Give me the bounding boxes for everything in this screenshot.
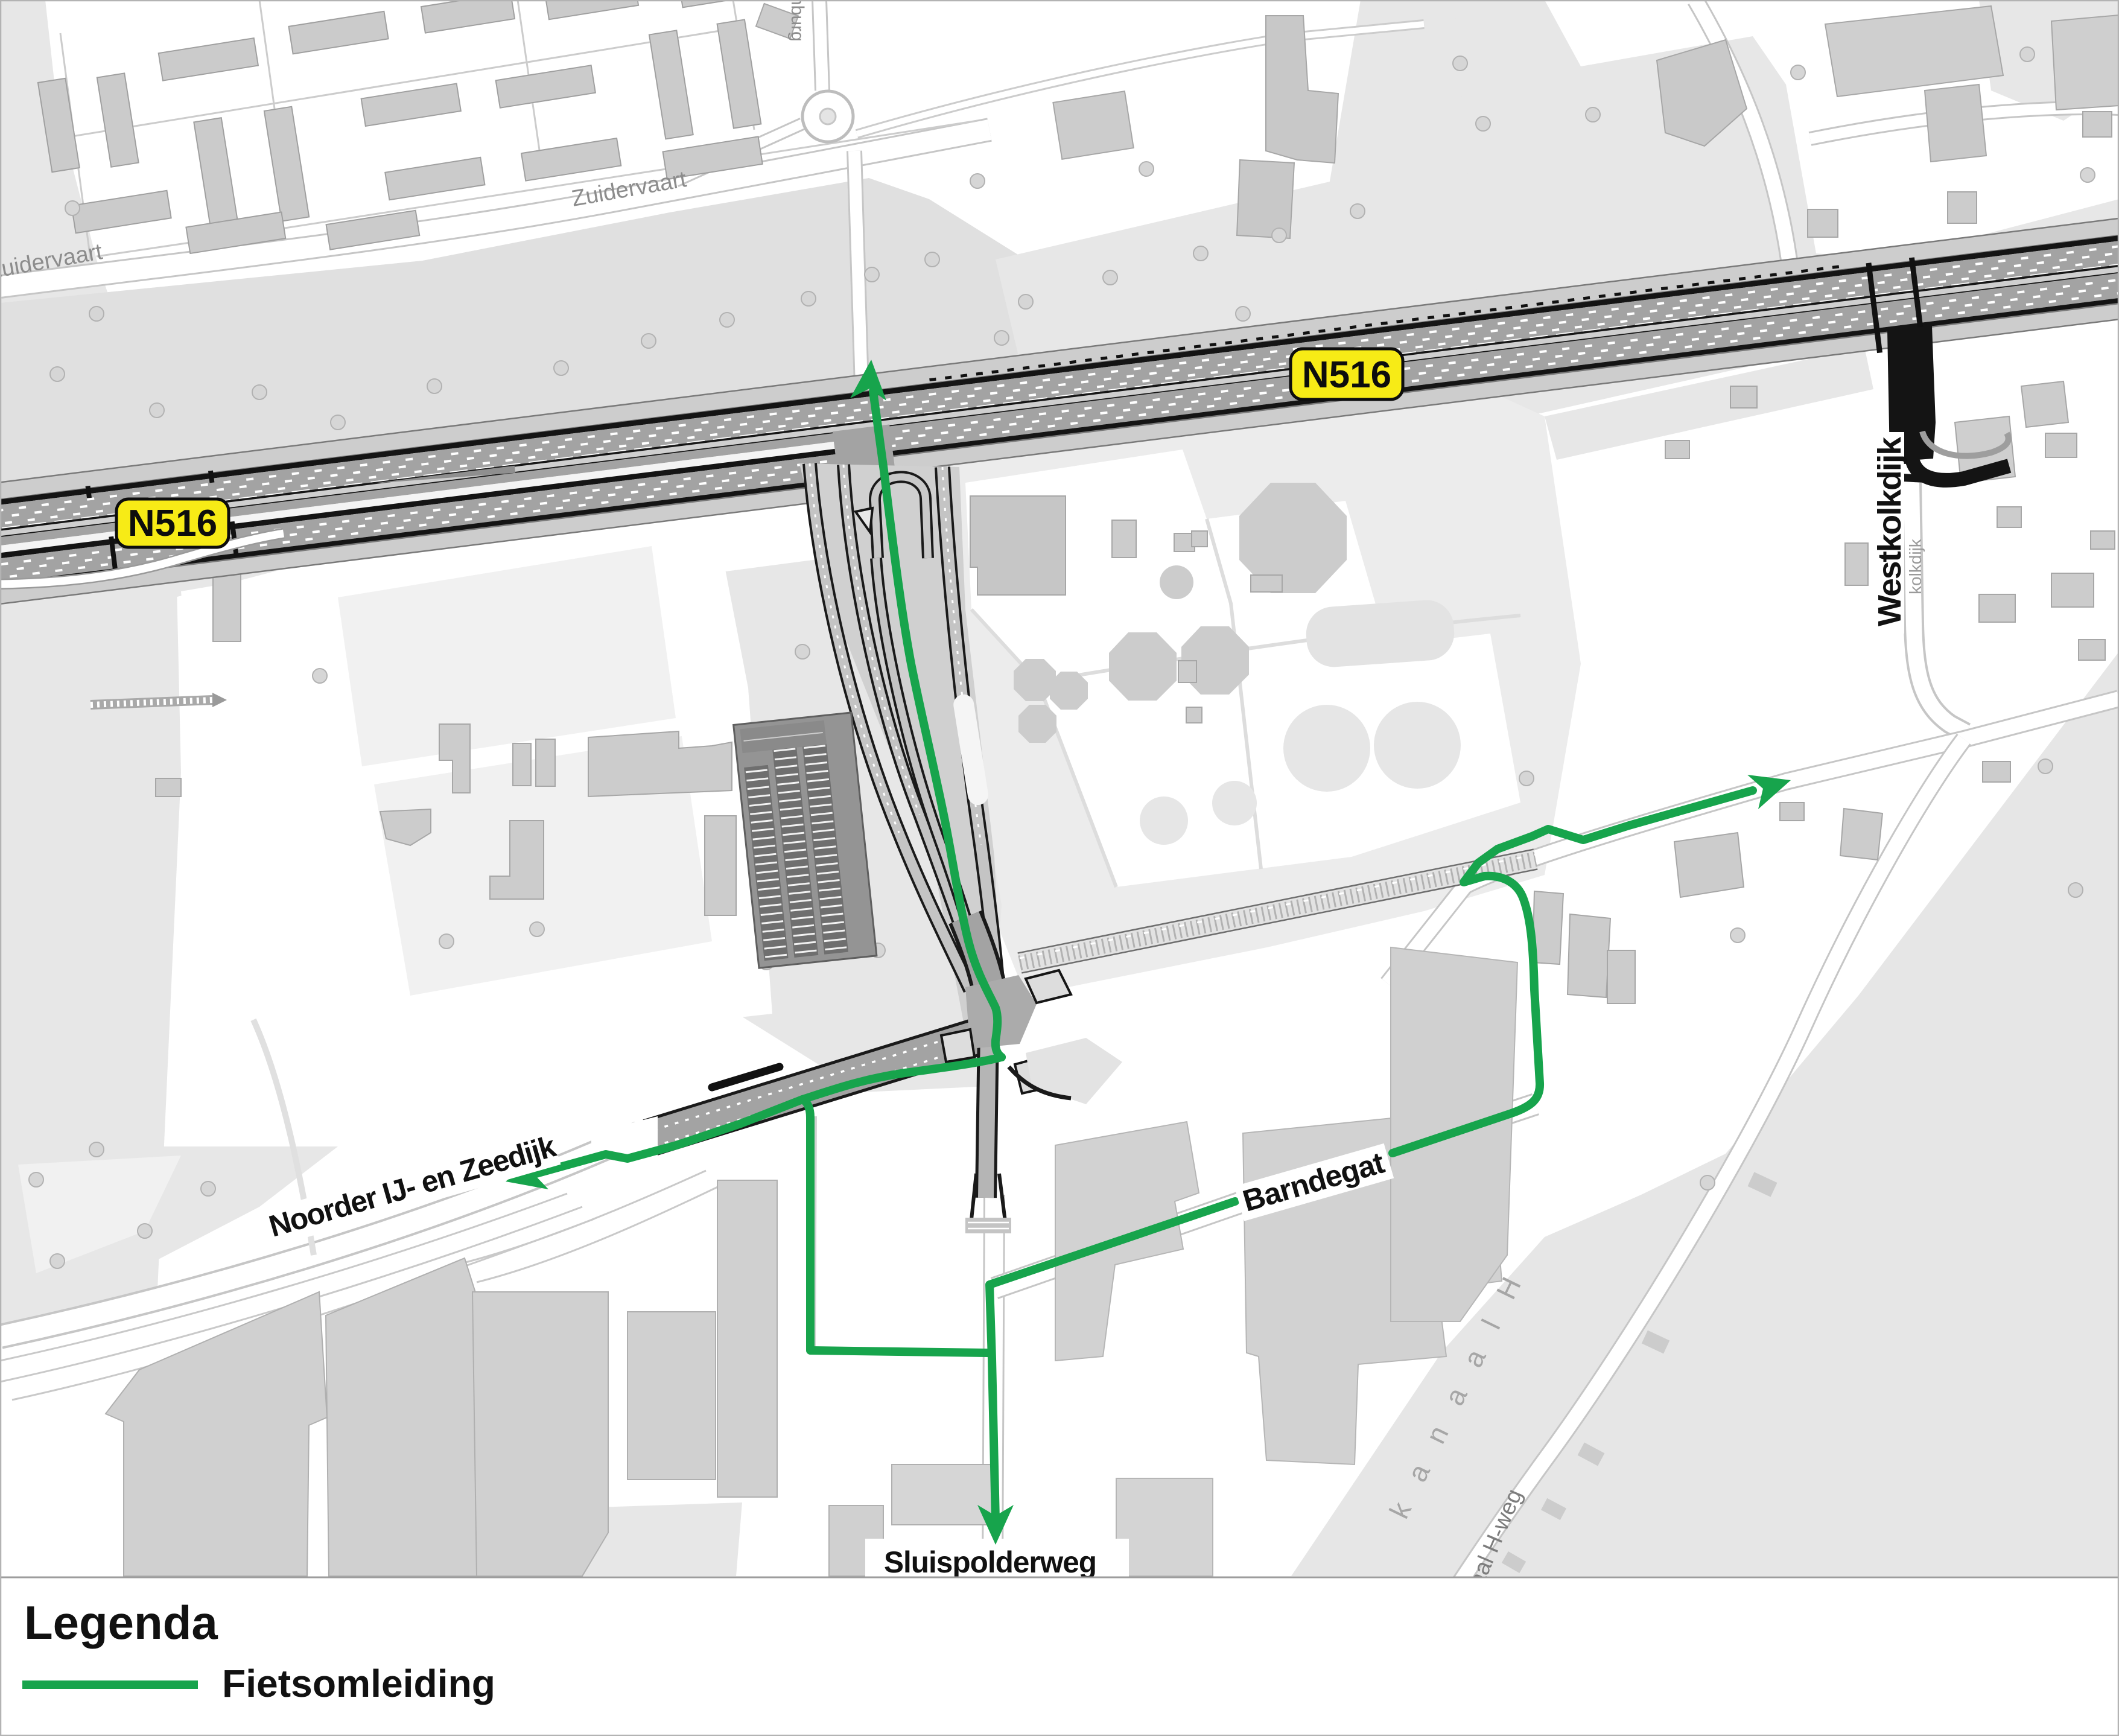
svg-text:Legenda: Legenda xyxy=(24,1596,218,1649)
svg-text:Sluispolderweg: Sluispolderweg xyxy=(884,1545,1096,1579)
svg-text:N516: N516 xyxy=(128,503,217,544)
svg-text:N516: N516 xyxy=(1302,354,1391,396)
svg-text:Fietsomleiding: Fietsomleiding xyxy=(222,1662,495,1705)
svg-text:kolkdijk: kolkdijk xyxy=(1906,538,1925,594)
svg-text:Westkolkdijk: Westkolkdijk xyxy=(1872,436,1908,626)
svg-text:nburg: nburg xyxy=(787,0,807,42)
